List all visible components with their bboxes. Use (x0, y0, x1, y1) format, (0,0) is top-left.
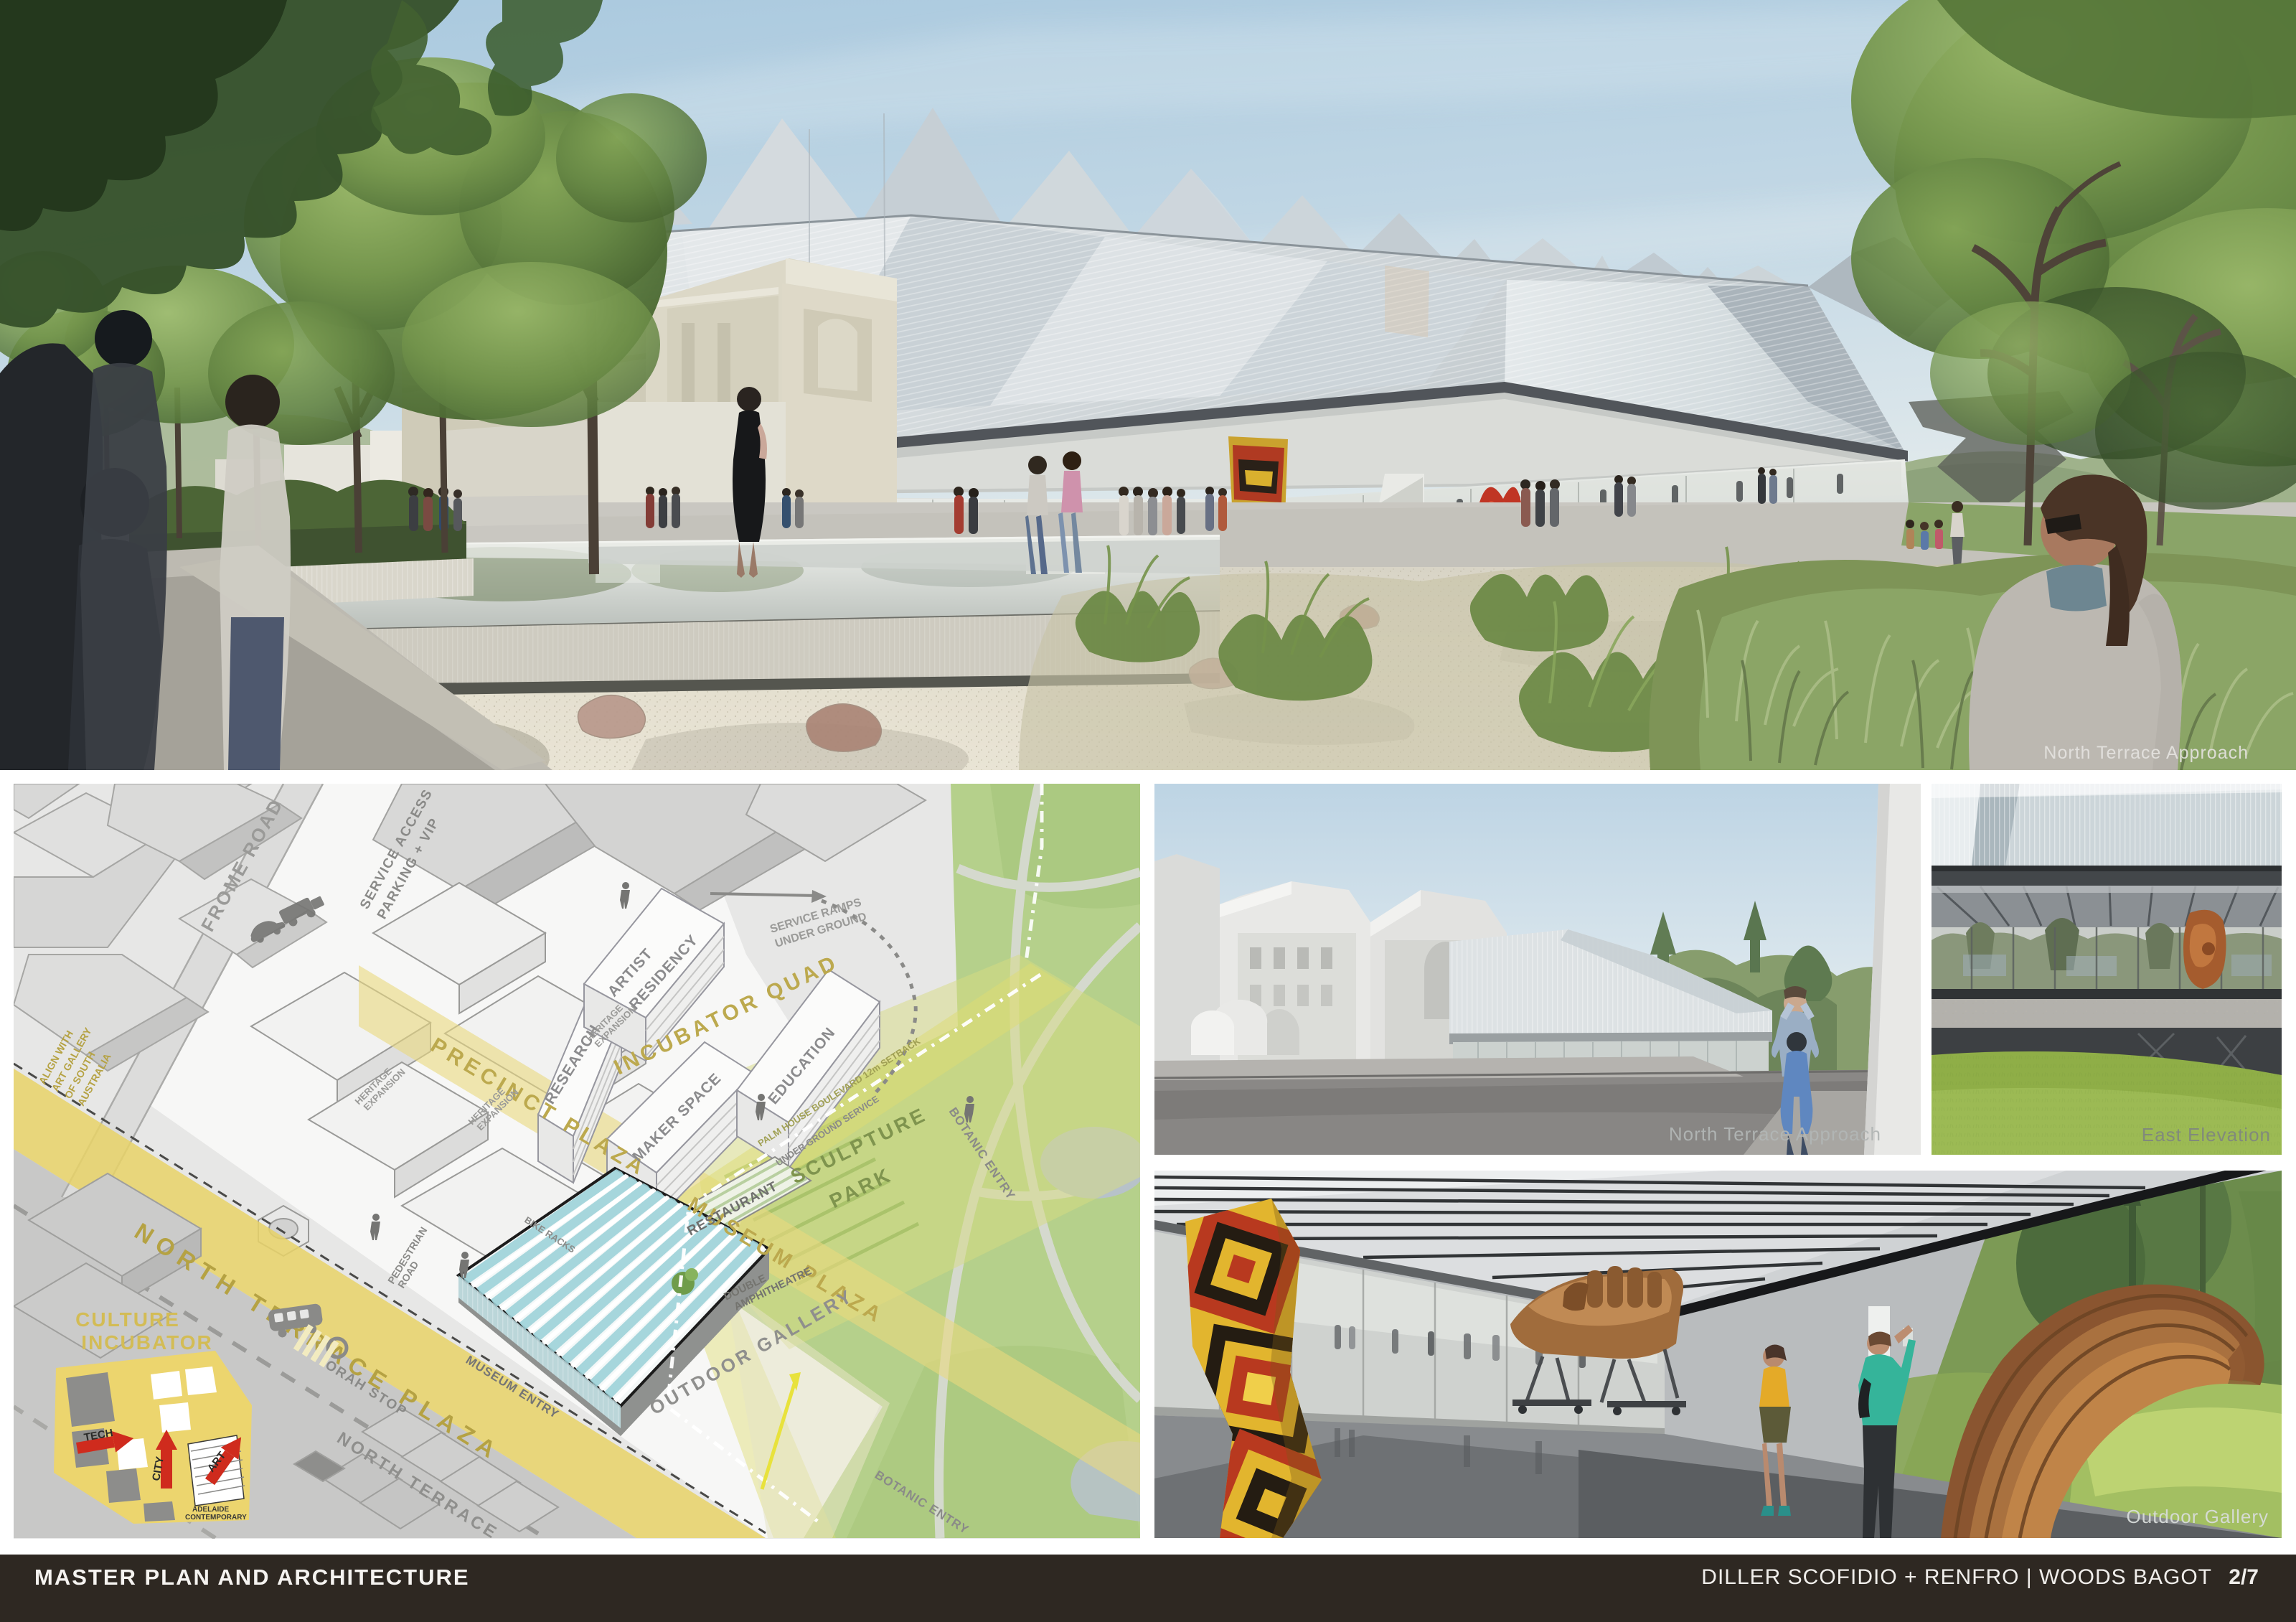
svg-text:INCUBATOR: INCUBATOR (81, 1331, 212, 1354)
svg-text:North Terrace Approach: North Terrace Approach (2043, 743, 2249, 763)
svg-text:2/7: 2/7 (2229, 1565, 2259, 1589)
svg-text:CONTEMPORARY: CONTEMPORARY (185, 1514, 247, 1522)
svg-text:CULTURE: CULTURE (75, 1308, 180, 1331)
svg-text:Outdoor Gallery: Outdoor Gallery (2126, 1506, 2269, 1527)
svg-text:East Elevation: East Elevation (2142, 1124, 2271, 1145)
svg-text:MASTER PLAN AND ARCHITECTURE: MASTER PLAN AND ARCHITECTURE (34, 1565, 470, 1590)
svg-text:North Terrace Approach: North Terrace Approach (1669, 1123, 1881, 1145)
svg-text:ADELAIDE: ADELAIDE (192, 1506, 229, 1514)
svg-text:DILLER SCOFIDIO + RENFRO | WOO: DILLER SCOFIDIO + RENFRO | WOODS BAGOT (1701, 1565, 2212, 1589)
